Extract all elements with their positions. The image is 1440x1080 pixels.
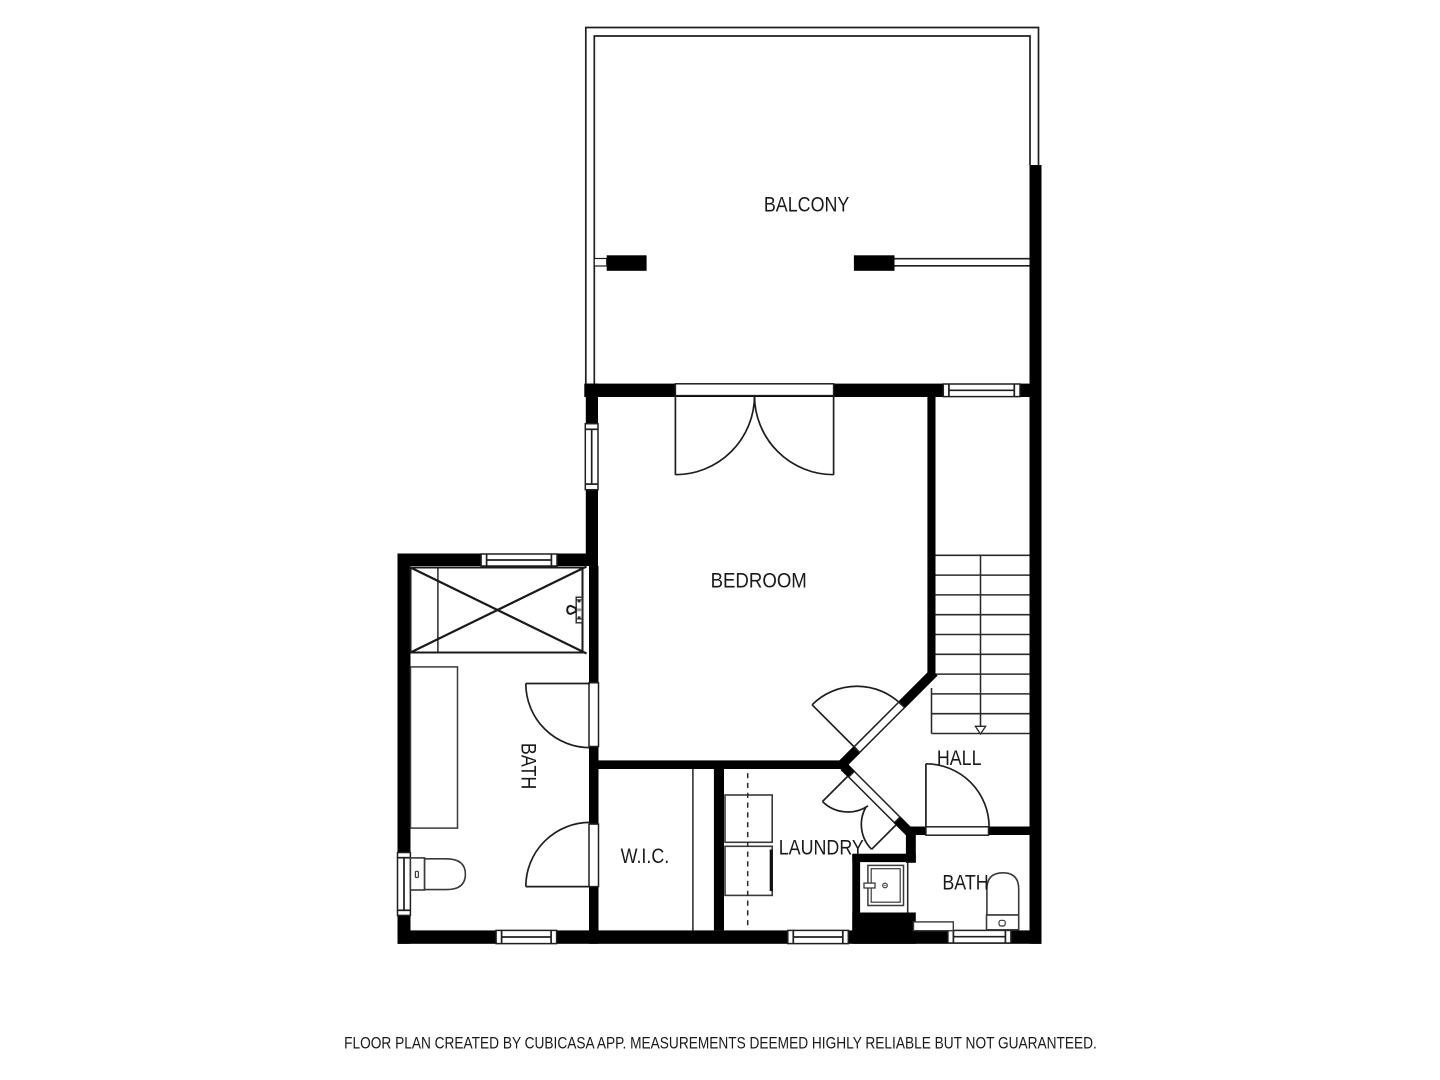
svg-text:W.I.C.: W.I.C.: [621, 845, 670, 869]
svg-text:LAUNDRY: LAUNDRY: [779, 836, 864, 860]
svg-text:HALL: HALL: [937, 746, 982, 770]
svg-text:BEDROOM: BEDROOM: [711, 569, 807, 592]
svg-text:BATH: BATH: [516, 743, 540, 789]
svg-text:BATH: BATH: [942, 871, 988, 895]
svg-text:FLOOR PLAN CREATED BY CUBICASA: FLOOR PLAN CREATED BY CUBICASA APP. MEAS…: [344, 1035, 1097, 1053]
svg-text:BALCONY: BALCONY: [764, 193, 849, 217]
